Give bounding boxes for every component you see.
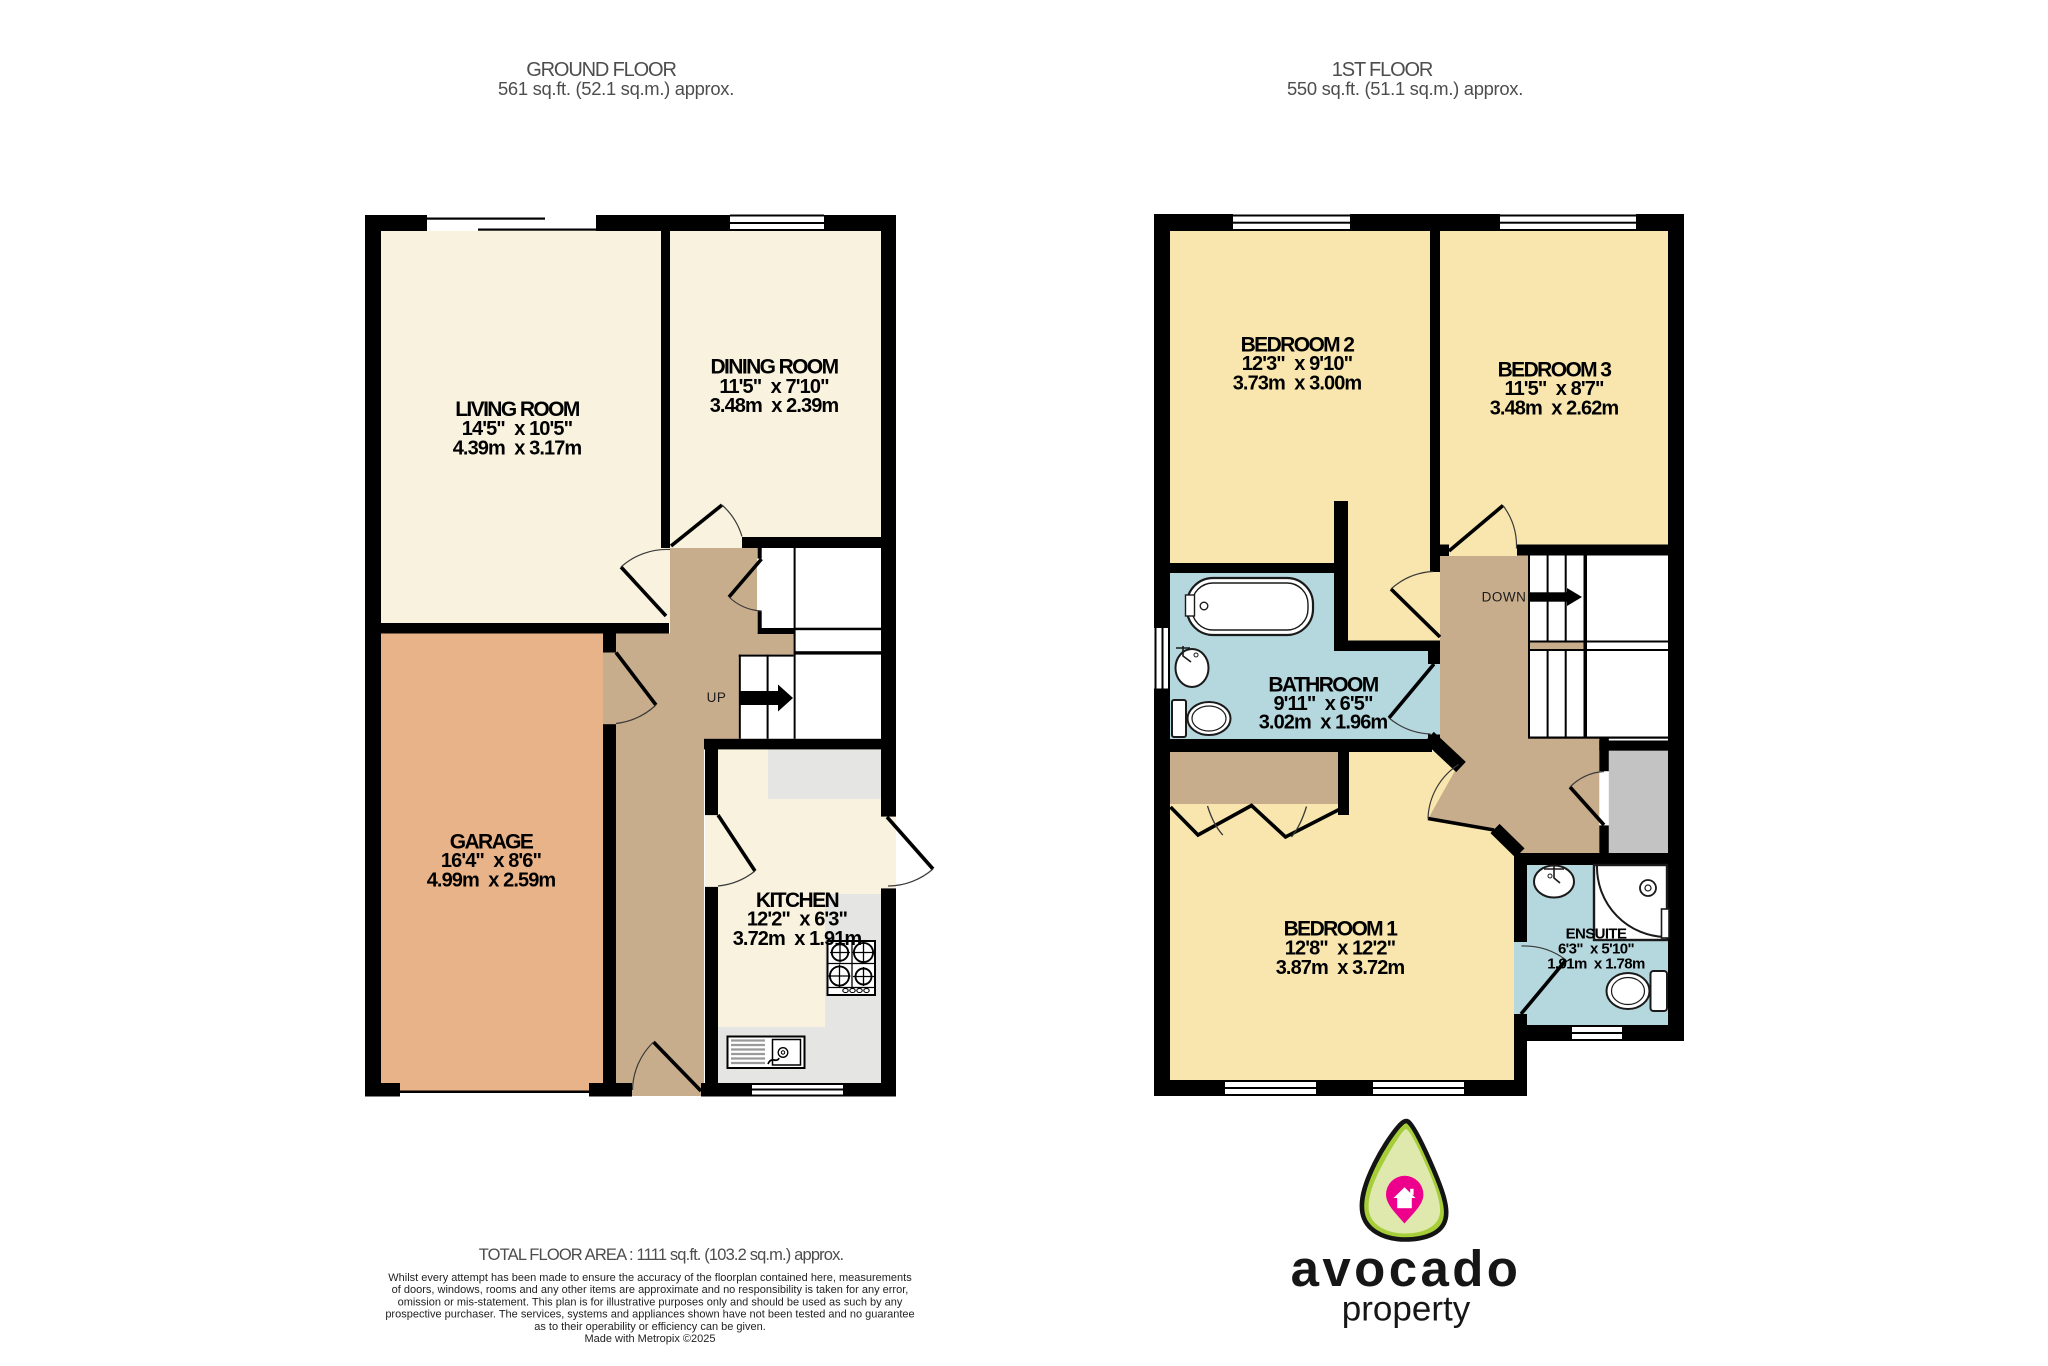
svg-text:3.72m x 1.91m: 3.72m x 1.91m <box>733 928 862 950</box>
svg-text:UP: UP <box>707 690 727 705</box>
svg-text:561 sq.ft. (52.1 sq.m.) approx: 561 sq.ft. (52.1 sq.m.) approx. <box>498 78 734 99</box>
svg-text:avocado: avocado <box>1291 1240 1522 1297</box>
svg-text:3.87m x 3.72m: 3.87m x 3.72m <box>1276 957 1405 979</box>
svg-text:Whilst every attempt has been: Whilst every attempt has been made to en… <box>388 1272 912 1284</box>
svg-text:prospective purchaser. The ser: prospective purchaser. The services, sys… <box>385 1309 914 1321</box>
svg-text:TOTAL FLOOR AREA : 1111 sq.ft.: TOTAL FLOOR AREA : 1111 sq.ft. (103.2 sq… <box>479 1246 844 1264</box>
svg-text:3.48m x 2.39m: 3.48m x 2.39m <box>710 395 839 417</box>
svg-text:Made with Metropix ©2025: Made with Metropix ©2025 <box>584 1333 715 1345</box>
svg-text:3.02m x 1.96m: 3.02m x 1.96m <box>1259 712 1388 734</box>
svg-text:1.91m x 1.78m: 1.91m x 1.78m <box>1547 956 1645 973</box>
svg-text:DOWN: DOWN <box>1482 590 1527 605</box>
svg-text:3.73m x 3.00m: 3.73m x 3.00m <box>1233 372 1362 394</box>
svg-text:omission or mis-statement. Thi: omission or mis-statement. This plan is … <box>398 1296 903 1308</box>
svg-text:4.39m x 3.17m: 4.39m x 3.17m <box>453 438 582 460</box>
svg-text:of doors, windows, rooms and a: of doors, windows, rooms and any other i… <box>392 1284 909 1296</box>
svg-text:as to their operability or eff: as to their operability or efficiency ca… <box>534 1321 766 1333</box>
svg-text:3.48m x 2.62m: 3.48m x 2.62m <box>1490 397 1619 419</box>
svg-text:4.99m x 2.59m: 4.99m x 2.59m <box>427 869 556 891</box>
svg-text:550 sq.ft. (51.1 sq.m.) approx: 550 sq.ft. (51.1 sq.m.) approx. <box>1287 78 1523 99</box>
svg-text:property: property <box>1342 1290 1471 1329</box>
